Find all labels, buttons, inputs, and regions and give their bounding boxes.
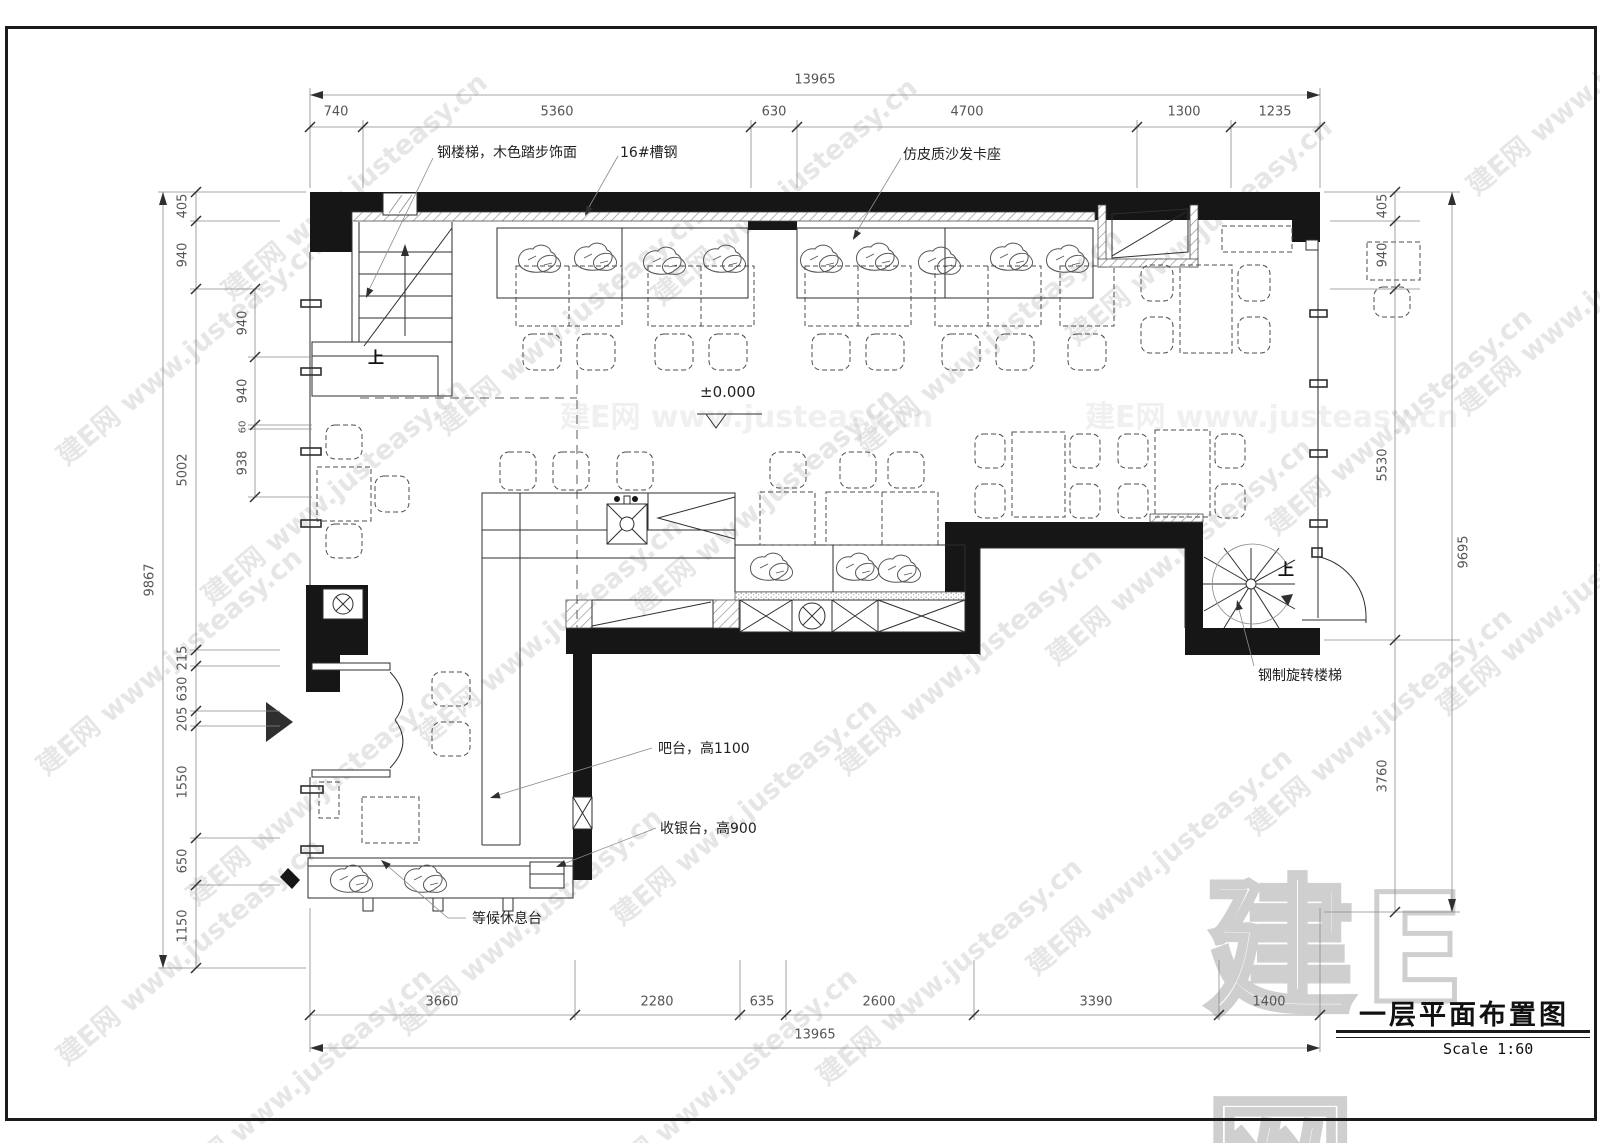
equipment-boxes [740,600,965,632]
dim-bottom-seg: 3660 [425,995,458,1010]
dim-left-seg: 630 [176,677,191,702]
dim-left-total: 9867 [143,563,158,596]
dim-right-total: 9695 [1457,535,1472,568]
dim-left-seg: 940 [176,243,191,268]
dimension-lines [158,88,1460,1052]
plant-sketch [1046,245,1088,272]
dim-top-seg: 5360 [540,105,573,120]
note-spiral-stair: 钢制旋转楼梯 [1258,665,1342,685]
corner-four-top-table [1141,265,1270,353]
walls [306,192,1320,880]
dim-bottom-seg: 1400 [1252,995,1285,1010]
plant-sketch [703,245,745,272]
floor-plan-canvas [0,0,1600,1143]
mezzanine-dashed-outline [360,370,577,628]
title-underline-thick [1336,1030,1590,1033]
booth-bench-row [497,228,1093,298]
dim-top-seg: 630 [762,105,787,120]
wall-hatch-strips [352,193,1203,628]
level-marker-symbol [697,414,762,428]
plant-sketch [330,865,372,892]
dim-top-seg: 740 [324,105,349,120]
up-label-spiral-stair: 上 [1278,556,1294,580]
title-underline-thin [1336,1037,1590,1038]
glazing-right [1306,240,1327,618]
dim-left-seg: 215 [176,646,191,671]
waiting-bench [280,858,573,911]
sheet-title: 一层平面布置图 [1344,993,1584,1032]
plant-sketch [878,555,920,582]
dim-right-seg: 5530 [1376,448,1391,481]
booth-tables-row [516,266,1114,326]
floor-plan-sheet: 建E网 www.justeasy.cn 建E网 www.justeasy.cn … [0,0,1600,1143]
lounge-seats-by-entry [319,672,470,843]
plant-sketch [836,553,878,580]
note-bar-counter: 吧台，高1100 [658,738,750,758]
plant-sketch [404,865,446,892]
note-cashier: 收银台，高900 [660,818,757,838]
stair-exit-door [1302,548,1366,623]
dim-left-seg: 5002 [176,453,191,486]
level-marker-label: ±0.000 [700,383,756,401]
dim-bottom-seg: 635 [750,995,775,1010]
booth-chairs-row [523,334,1106,370]
dim-right-seg: 3760 [1376,759,1391,792]
entry-arrow-icon [266,702,293,742]
column-symbol [323,589,363,619]
dim-left-inner: 938 [236,451,251,476]
bar-stool-chairs [500,452,653,490]
dim-left-seg: 405 [176,194,191,219]
sheet-scale: Scale 1:60 [1443,1040,1533,1058]
void-outline [980,548,1185,655]
dim-bottom-seg: 3390 [1079,995,1112,1010]
dim-left-seg: 205 [176,707,191,732]
plant-sketch [518,245,560,272]
dim-top-seg: 4700 [950,105,983,120]
dim-left-seg: 1150 [176,909,191,942]
dim-top-total: 13965 [794,73,835,88]
right-hall-four-tops [975,430,1245,518]
dim-top-seg: 1300 [1167,105,1200,120]
plant-sketch [643,247,685,274]
dim-right-seg: 940 [1376,243,1391,268]
dim-left-inner: 940 [236,311,251,336]
window-three-top [317,425,409,558]
dim-left-seg: 1550 [176,765,191,798]
plant-sketch [918,247,960,274]
middle-banquette [735,545,965,600]
plant-sketch [750,553,792,580]
note-stair-finish: 钢楼梯，木色踏步饰面 [437,142,577,162]
bar-counter [482,493,735,845]
dim-bottom-total: 13965 [794,1028,835,1043]
dim-bottom-seg: 2280 [640,995,673,1010]
dim-left-inner: 60 [238,421,249,434]
dim-left-seg: 650 [176,849,191,874]
dim-right-seg: 405 [1376,194,1391,219]
dim-left-inner: 940 [236,379,251,404]
up-label-left-stair: 上 [368,344,384,368]
bar-sink [607,496,647,544]
dim-top-seg: 1235 [1258,105,1291,120]
note-channel-steel: 16#槽钢 [620,142,678,162]
dim-bottom-seg: 2600 [862,995,895,1010]
note-sofa-booth: 仿皮质沙发卡座 [903,144,1001,164]
plant-sketch [800,245,842,272]
mid-hall-tables [760,452,938,545]
note-waiting-bench: 等候休息台 [472,908,542,928]
